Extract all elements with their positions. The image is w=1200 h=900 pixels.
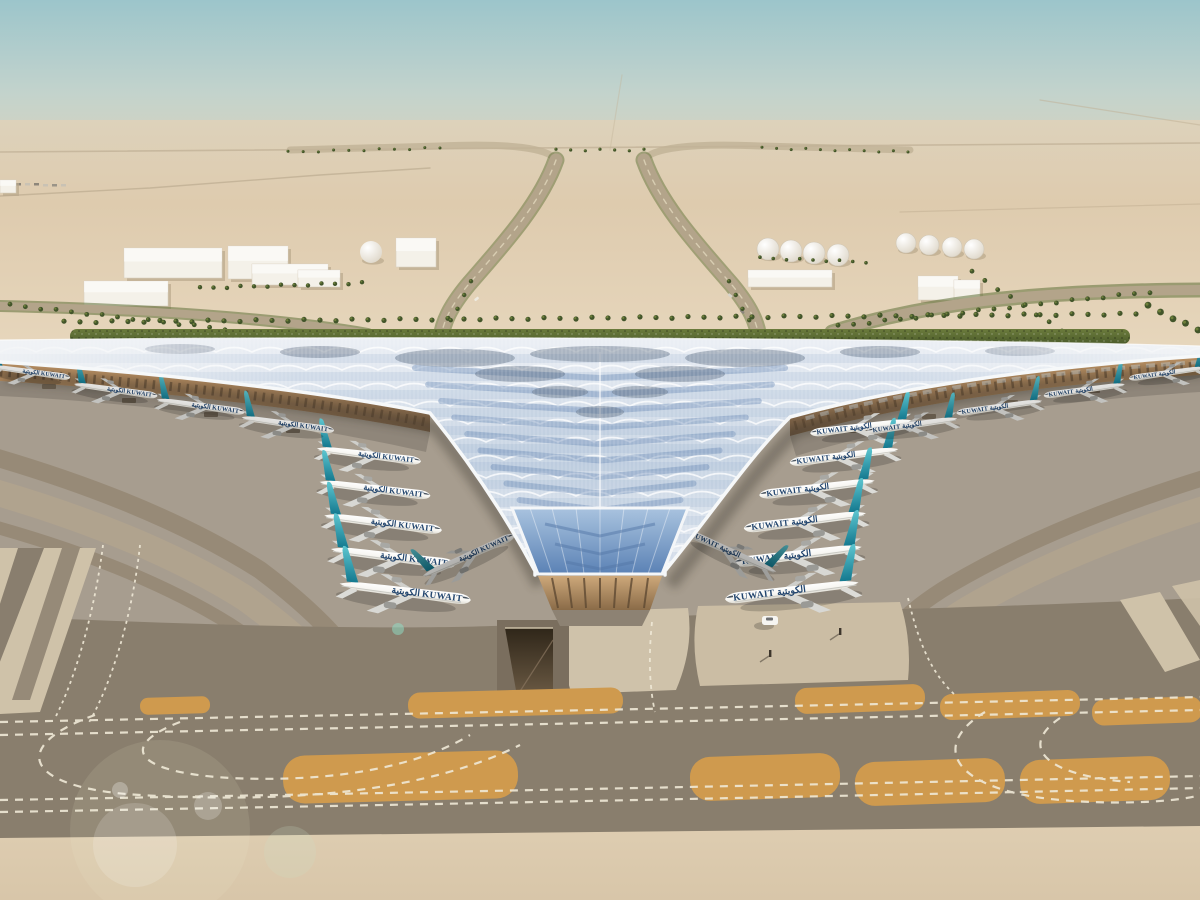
- support-building: [396, 238, 439, 270]
- palm-tree: [423, 146, 426, 149]
- palm-tree: [824, 260, 828, 264]
- palm-tree: [613, 148, 616, 151]
- palm-tree: [893, 313, 898, 318]
- palm-tree: [1070, 297, 1075, 302]
- palm-tree: [317, 317, 322, 322]
- palm-tree: [798, 257, 802, 261]
- palm-tree: [38, 307, 43, 312]
- palm-tree: [804, 147, 807, 150]
- palm-tree: [1007, 306, 1012, 311]
- palm-tree: [237, 319, 242, 324]
- palm-tree: [836, 323, 841, 328]
- palm-tree: [1148, 290, 1153, 295]
- palm-tree: [970, 269, 975, 274]
- palm-tree: [781, 313, 786, 318]
- palm-tree: [1008, 294, 1013, 299]
- airport-aerial-rendering: الكويتية KUWAITالكويتية KUWAITالكويتية K…: [0, 0, 1200, 900]
- palm-tree: [945, 312, 950, 317]
- palm-tree: [69, 309, 74, 314]
- palm-tree: [349, 316, 354, 321]
- palm-tree: [363, 149, 366, 152]
- palm-tree: [1021, 311, 1026, 316]
- palm-tree: [192, 322, 197, 327]
- palm-tree: [813, 315, 818, 320]
- palm-tree: [141, 320, 146, 325]
- palm-tree: [765, 315, 770, 320]
- support-building: [748, 270, 835, 290]
- palm-tree: [717, 315, 722, 320]
- palm-tree: [554, 148, 557, 151]
- palm-tree: [734, 293, 738, 297]
- palm-tree: [775, 147, 778, 150]
- palm-tree: [301, 317, 306, 322]
- palm-tree: [584, 149, 587, 152]
- palm-tree: [493, 315, 498, 320]
- palm-tree: [992, 307, 997, 312]
- palm-tree: [929, 313, 934, 318]
- palm-tree: [628, 149, 631, 152]
- palm-tree: [54, 307, 59, 312]
- palm-tree: [279, 283, 283, 287]
- palm-tree: [333, 282, 337, 286]
- palm-tree: [125, 319, 130, 324]
- service-trench: [497, 620, 569, 700]
- palm-tree: [109, 318, 114, 323]
- support-building: [298, 270, 343, 290]
- palm-tree: [93, 320, 98, 325]
- palm-tree: [252, 284, 256, 288]
- palm-tree: [413, 317, 418, 322]
- palm-tree: [146, 317, 151, 322]
- palm-tree: [797, 314, 802, 319]
- palm-tree: [319, 281, 323, 285]
- palm-tree: [100, 312, 105, 317]
- palm-tree: [346, 282, 350, 286]
- palm-tree: [1117, 311, 1122, 316]
- palm-tree: [867, 321, 872, 326]
- palm-tree: [1034, 313, 1039, 318]
- palm-tree: [365, 317, 370, 322]
- palm-tree: [1054, 301, 1059, 306]
- entrance-apron-shadow: [552, 610, 650, 626]
- palm-tree: [1005, 313, 1010, 318]
- palm-tree: [1038, 302, 1043, 307]
- palm-tree: [221, 318, 226, 323]
- palm-tree: [1069, 311, 1074, 316]
- palm-tree: [1085, 312, 1090, 317]
- palm-tree: [429, 317, 434, 322]
- palm-tree: [914, 316, 919, 321]
- palm-tree: [1085, 296, 1090, 301]
- palm-tree: [347, 149, 350, 152]
- palm-tree: [161, 320, 166, 325]
- palm-tree: [621, 316, 626, 321]
- palm-tree: [740, 307, 744, 311]
- palm-tree: [976, 308, 981, 313]
- palm-tree: [861, 314, 866, 319]
- palm-tree: [892, 149, 895, 152]
- palm-tree: [332, 149, 335, 152]
- palm-tree: [785, 258, 789, 262]
- palm-tree: [381, 318, 386, 323]
- palm-tree: [130, 317, 135, 322]
- palm-tree: [333, 318, 338, 323]
- palm-tree: [1170, 315, 1177, 322]
- palm-tree: [771, 257, 775, 261]
- palm-tree: [287, 150, 290, 153]
- palm-tree: [84, 312, 89, 317]
- palm-tree: [393, 148, 396, 151]
- palm-tree: [8, 302, 13, 307]
- palm-tree: [589, 315, 594, 320]
- palm-tree: [829, 313, 834, 318]
- palm-tree: [1047, 319, 1052, 324]
- palm-tree: [525, 317, 530, 322]
- palm-tree: [469, 279, 473, 283]
- palm-tree: [317, 151, 320, 154]
- palm-tree: [573, 316, 578, 321]
- palm-tree: [907, 151, 910, 154]
- palm-tree: [653, 315, 658, 320]
- palm-tree: [982, 278, 987, 283]
- palm-tree: [207, 325, 212, 330]
- palm-tree: [790, 148, 793, 151]
- palm-tree: [61, 319, 66, 324]
- palm-tree: [637, 314, 642, 319]
- palm-tree: [211, 285, 215, 289]
- palm-tree: [198, 285, 202, 289]
- palm-tree: [834, 149, 837, 152]
- palm-tree: [811, 258, 815, 262]
- palm-tree: [848, 148, 851, 151]
- palm-tree: [225, 286, 229, 290]
- palm-tree: [851, 260, 855, 264]
- palm-tree: [877, 313, 882, 318]
- palm-tree: [598, 148, 601, 151]
- palm-tree: [1101, 312, 1106, 317]
- palm-tree: [685, 314, 690, 319]
- palm-tree: [461, 316, 466, 321]
- palm-tree: [238, 284, 242, 288]
- palm-tree: [605, 315, 610, 320]
- palm-tree: [989, 312, 994, 317]
- palm-tree: [462, 293, 466, 297]
- scene-canvas: الكويتية KUWAITالكويتية KUWAITالكويتية K…: [0, 0, 1200, 900]
- palm-tree: [455, 307, 459, 311]
- palm-tree: [23, 304, 28, 309]
- palm-tree: [877, 151, 880, 154]
- palm-tree: [360, 280, 364, 284]
- palm-tree: [758, 255, 762, 259]
- palm-tree: [306, 283, 310, 287]
- palm-tree: [439, 147, 442, 150]
- palm-tree: [477, 317, 482, 322]
- palm-tree: [269, 318, 274, 323]
- palm-tree: [882, 318, 887, 323]
- palm-tree: [378, 147, 381, 150]
- palm-tree: [253, 317, 258, 322]
- palm-tree: [265, 285, 269, 289]
- palm-tree: [1157, 309, 1164, 316]
- palm-tree: [1053, 313, 1058, 318]
- support-building: [124, 248, 225, 281]
- palm-tree: [77, 319, 82, 324]
- palm-tree: [509, 316, 514, 321]
- palm-tree: [397, 316, 402, 321]
- palm-tree: [177, 322, 182, 327]
- palm-tree: [701, 315, 706, 320]
- palm-tree: [1145, 302, 1152, 309]
- palm-tree: [1116, 292, 1121, 297]
- palm-tree: [541, 315, 546, 320]
- palm-tree: [733, 314, 738, 319]
- palm-tree: [1132, 291, 1137, 296]
- palm-tree: [302, 150, 305, 153]
- palm-tree: [995, 287, 1000, 292]
- palm-tree: [838, 258, 842, 262]
- palm-tree: [747, 318, 751, 322]
- palm-tree: [285, 319, 290, 324]
- palm-tree: [960, 311, 965, 316]
- palm-tree: [1023, 302, 1028, 307]
- palm-tree: [1101, 296, 1106, 301]
- palm-tree: [819, 148, 822, 151]
- palm-tree: [642, 148, 645, 151]
- palm-tree: [761, 146, 764, 149]
- palm-tree: [898, 317, 903, 322]
- palm-tree: [973, 312, 978, 317]
- palm-tree: [449, 318, 453, 322]
- palm-tree: [1182, 320, 1189, 327]
- palm-tree: [557, 316, 562, 321]
- palm-tree: [727, 279, 731, 283]
- palm-tree: [292, 283, 296, 287]
- palm-tree: [205, 318, 210, 323]
- palm-tree: [669, 316, 674, 321]
- palm-tree: [851, 322, 856, 327]
- palm-tree: [569, 148, 572, 151]
- palm-tree: [408, 148, 411, 151]
- palm-tree: [115, 315, 120, 320]
- palm-tree: [864, 261, 868, 265]
- palm-tree: [863, 149, 866, 152]
- palm-tree: [845, 314, 850, 319]
- palm-tree: [1133, 311, 1138, 316]
